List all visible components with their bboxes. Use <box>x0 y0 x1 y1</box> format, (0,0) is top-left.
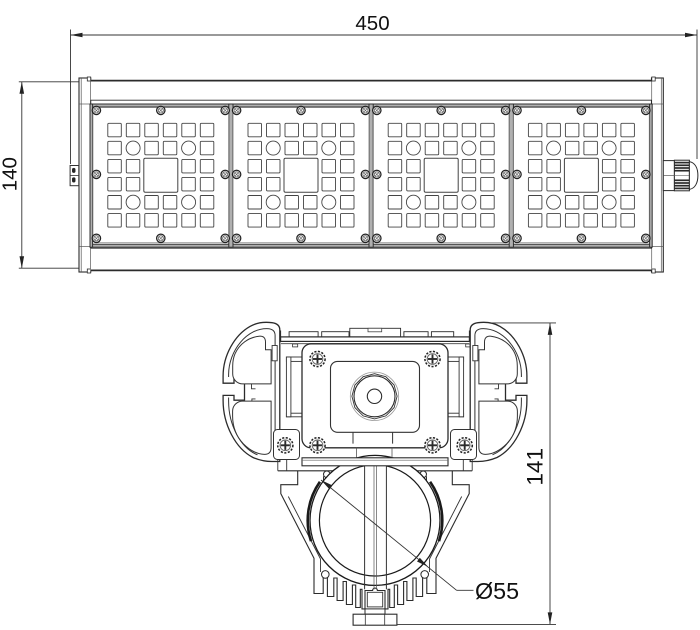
svg-text:450: 450 <box>355 12 389 35</box>
svg-text:Ø55: Ø55 <box>475 578 519 604</box>
svg-text:140: 140 <box>0 157 21 191</box>
svg-text:141: 141 <box>523 448 548 486</box>
